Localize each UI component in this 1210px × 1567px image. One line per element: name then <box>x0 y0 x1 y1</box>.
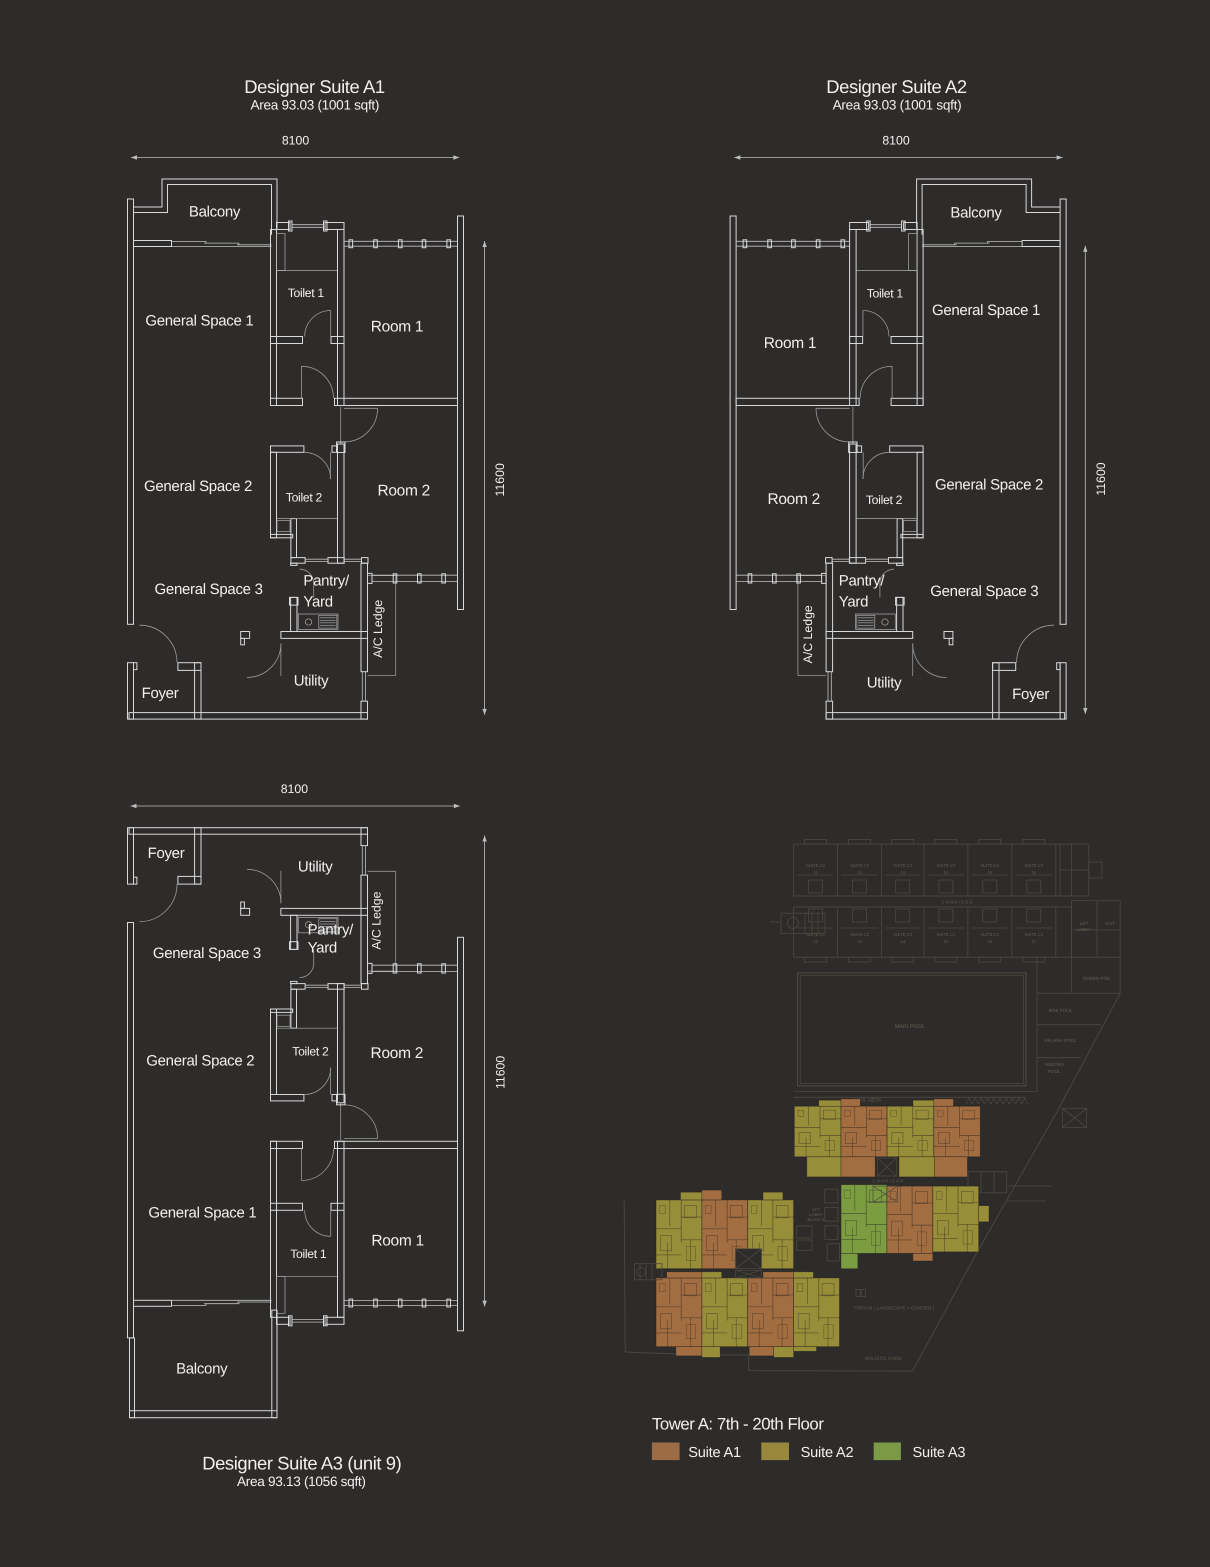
svg-text:16: 16 <box>1031 870 1036 875</box>
svg-text:General Space 1: General Space 1 <box>932 302 1040 319</box>
svg-text:Toilet 2: Toilet 2 <box>866 493 903 507</box>
svg-text:TRIGON ( LANDSCAPE + GARDEN ): TRIGON ( LANDSCAPE + GARDEN ) <box>854 1306 935 1312</box>
svg-text:General Space 1: General Space 1 <box>148 1205 256 1222</box>
svg-text:Yard: Yard <box>303 594 332 611</box>
svg-text:General Space 2: General Space 2 <box>144 478 252 495</box>
svg-text:Toilet 1: Toilet 1 <box>288 286 325 300</box>
svg-text:Suite A2: Suite A2 <box>801 1445 854 1461</box>
svg-text:Suite A3: Suite A3 <box>913 1445 966 1461</box>
svg-text:Toilet 1: Toilet 1 <box>867 286 904 300</box>
svg-text:WADING: WADING <box>1045 1062 1064 1067</box>
svg-text:Pantry/: Pantry/ <box>839 573 886 590</box>
svg-text:Room 1: Room 1 <box>371 318 423 335</box>
svg-text:17: 17 <box>1031 939 1036 944</box>
svg-text:14: 14 <box>900 939 905 944</box>
svg-text:BLOCK A: BLOCK A <box>807 1217 824 1222</box>
svg-text:Balcony: Balcony <box>189 204 241 221</box>
svg-text:LOBBY: LOBBY <box>1077 927 1091 932</box>
svg-text:C O R R I D O R: C O R R I D O R <box>942 900 973 905</box>
svg-text:15: 15 <box>944 939 949 944</box>
svg-text:Toilet 2: Toilet 2 <box>292 1045 329 1059</box>
svg-text:General Space 1: General Space 1 <box>145 312 253 329</box>
svg-text:Pantry/: Pantry/ <box>308 922 355 939</box>
svg-text:A/C Ledge: A/C Ledge <box>369 891 383 949</box>
svg-text:SUITE C2: SUITE C2 <box>893 932 913 937</box>
svg-text:8100: 8100 <box>882 134 910 148</box>
svg-text:Tower A: 7th - 20th Floor: Tower A: 7th - 20th Floor <box>652 1415 824 1434</box>
svg-text:Foyer: Foyer <box>142 685 179 702</box>
svg-text:General Space 3: General Space 3 <box>153 945 261 962</box>
svg-text:SUITE C2: SUITE C2 <box>980 863 1000 868</box>
svg-text:SUITE C2: SUITE C2 <box>936 932 956 937</box>
svg-text:MAIN POOL: MAIN POOL <box>895 1024 925 1030</box>
svg-text:Room 2: Room 2 <box>371 1045 423 1062</box>
svg-text:Pantry/: Pantry/ <box>303 573 350 590</box>
svg-text:Utility: Utility <box>298 858 333 875</box>
svg-text:Balcony: Balcony <box>950 205 1002 222</box>
svg-text:SPLASH POOL: SPLASH POOL <box>1044 1038 1077 1043</box>
svg-text:SUITE C2: SUITE C2 <box>806 863 826 868</box>
svg-text:A/C Ledge: A/C Ledge <box>371 600 385 658</box>
svg-text:GREEN POD: GREEN POD <box>1083 976 1111 981</box>
svg-text:8100: 8100 <box>282 134 310 148</box>
svg-text:11: 11 <box>813 870 818 875</box>
svg-text:General Space 3: General Space 3 <box>155 581 263 598</box>
svg-text:Yard: Yard <box>839 594 868 611</box>
svg-text:SUITE C2: SUITE C2 <box>936 863 956 868</box>
svg-text:SUITE C2: SUITE C2 <box>1024 863 1044 868</box>
svg-text:Designer Suite A1: Designer Suite A1 <box>244 76 385 97</box>
svg-text:8100: 8100 <box>281 782 309 796</box>
svg-text:12: 12 <box>813 939 818 944</box>
svg-text:SUITE C2: SUITE C2 <box>850 932 870 937</box>
svg-text:SUITE C2: SUITE C2 <box>980 932 1000 937</box>
svg-text:A/C Ledge: A/C Ledge <box>801 605 815 663</box>
svg-text:Area 93.13 (1056 sqft): Area 93.13 (1056 sqft) <box>237 1474 366 1489</box>
svg-text:SUITE C2: SUITE C2 <box>893 863 913 868</box>
svg-text:13: 13 <box>857 939 862 944</box>
svg-text:Room 2: Room 2 <box>377 483 429 500</box>
svg-text:Designer Suite A3 (unit 9): Designer Suite A3 (unit 9) <box>202 1453 401 1474</box>
svg-text:Room 1: Room 1 <box>764 335 816 352</box>
svg-text:Suite A1: Suite A1 <box>688 1445 741 1461</box>
svg-text:Yard: Yard <box>308 940 337 957</box>
svg-text:General Space 2: General Space 2 <box>935 477 1043 494</box>
svg-text:Foyer: Foyer <box>148 845 185 862</box>
svg-text:15: 15 <box>987 870 992 875</box>
svg-text:POOL: POOL <box>1048 1069 1061 1074</box>
svg-text:SUITE C2: SUITE C2 <box>1024 932 1044 937</box>
svg-text:LIFT: LIFT <box>1080 921 1089 926</box>
svg-text:11600: 11600 <box>493 1056 507 1089</box>
svg-text:Balcony: Balcony <box>176 1361 228 1378</box>
svg-text:Designer Suite A2: Designer Suite A2 <box>826 76 967 97</box>
svg-text:Toilet 2: Toilet 2 <box>286 491 323 505</box>
svg-text:Toilet 1: Toilet 1 <box>290 1247 327 1261</box>
svg-text:General Space 2: General Space 2 <box>146 1052 254 1069</box>
svg-text:General Space 3: General Space 3 <box>930 583 1038 600</box>
svg-text:14: 14 <box>944 870 949 875</box>
svg-text:C O R R I D O R: C O R R I D O R <box>873 1179 904 1184</box>
svg-text:12: 12 <box>857 870 862 875</box>
svg-text:Room 1: Room 1 <box>371 1232 423 1249</box>
svg-text:16: 16 <box>987 939 992 944</box>
svg-text:Foyer: Foyer <box>1012 686 1049 703</box>
svg-text:Utility: Utility <box>867 675 902 692</box>
svg-text:SUITE C2: SUITE C2 <box>806 932 826 937</box>
svg-text:Utility: Utility <box>294 673 329 690</box>
svg-text:Area 93.03 (1001 sqft): Area 93.03 (1001 sqft) <box>250 98 379 113</box>
svg-text:13: 13 <box>900 870 905 875</box>
svg-text:EXIT: EXIT <box>1105 921 1115 926</box>
svg-text:11600: 11600 <box>493 463 507 496</box>
svg-text:SUITE C2: SUITE C2 <box>850 863 870 868</box>
svg-text:Area 93.03 (1001 sqft): Area 93.03 (1001 sqft) <box>833 98 962 113</box>
svg-text:11600: 11600 <box>1094 462 1108 495</box>
svg-text:MINI POOL: MINI POOL <box>1049 1008 1073 1013</box>
svg-text:Room 2: Room 2 <box>767 491 819 508</box>
svg-text:HOLISTIC POND: HOLISTIC POND <box>865 1356 903 1362</box>
